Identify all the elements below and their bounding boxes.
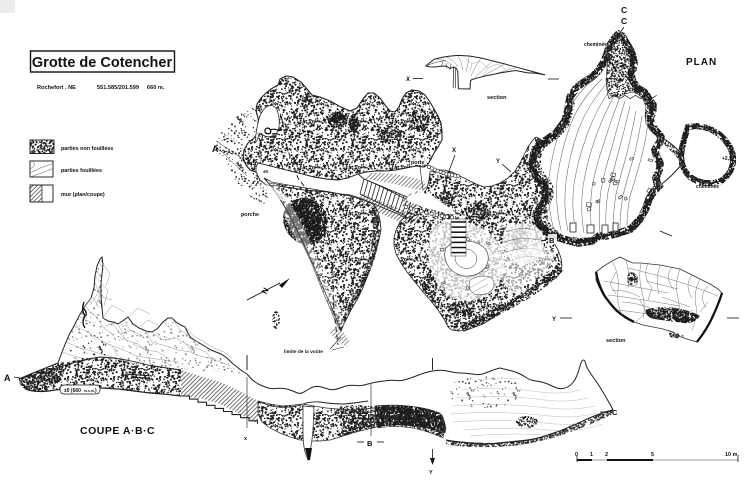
svg-text:Y: Y (552, 317, 556, 323)
svg-text:10 m.: 10 m. (725, 452, 740, 458)
svg-text:section: section (606, 338, 626, 344)
svg-text:A: A (4, 373, 11, 383)
svg-text:parties non fouillées: parties non fouillées (61, 146, 113, 152)
svg-text:m.s.m.: m.s.m. (84, 389, 95, 393)
svg-text:5: 5 (651, 452, 654, 458)
svg-text:B: B (549, 236, 555, 245)
svg-text:Y: Y (429, 470, 433, 476)
svg-text:Grotte de Cotencher: Grotte de Cotencher (32, 55, 173, 71)
svg-text:X: X (452, 148, 456, 154)
svg-text:limite de la voûte: limite de la voûte (284, 349, 323, 355)
svg-text:COUPE A·B·C: COUPE A·B·C (80, 425, 155, 437)
svg-text:0: 0 (575, 452, 578, 458)
svg-text:C: C (621, 16, 627, 26)
svg-text:porte: porte (411, 160, 424, 166)
svg-text:551.585/201.599: 551.585/201.599 (97, 85, 139, 91)
svg-text:C: C (621, 5, 627, 15)
svg-text:X: X (406, 77, 410, 83)
svg-text:parties fouillées: parties fouillées (61, 168, 102, 174)
svg-text:C: C (612, 408, 618, 417)
svg-text:Rochefort , NE: Rochefort , NE (37, 85, 76, 91)
svg-text:+2,5: +2,5 (722, 156, 732, 162)
svg-text:section: section (487, 95, 507, 101)
svg-text:A: A (212, 144, 219, 154)
svg-text:cheminée: cheminée (584, 42, 607, 48)
svg-text:2: 2 (605, 452, 608, 458)
svg-text:±0 (660: ±0 (660 (64, 388, 81, 394)
svg-text:PLAN: PLAN (686, 57, 717, 68)
svg-text:1: 1 (590, 452, 593, 458)
svg-text:±0: ±0 (263, 169, 269, 174)
svg-text:Y: Y (496, 159, 500, 165)
svg-text:porche: porche (241, 212, 259, 218)
svg-text:B: B (367, 439, 373, 448)
svg-text:660 m.: 660 m. (147, 85, 165, 91)
svg-text:mur (plan/coupe): mur (plan/coupe) (61, 192, 105, 198)
svg-text:cheminée: cheminée (696, 184, 719, 190)
